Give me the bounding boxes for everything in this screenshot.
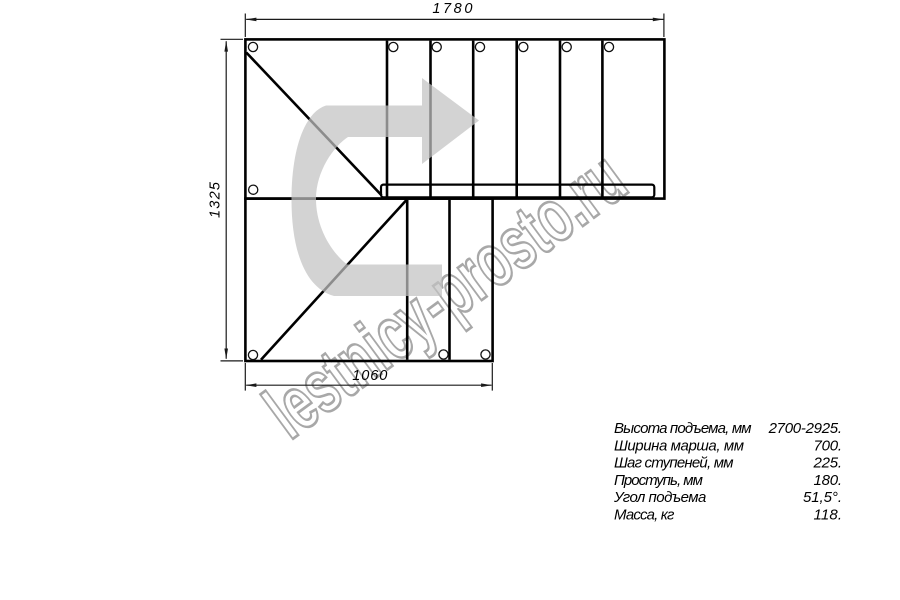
svg-text:225.: 225. — [813, 455, 843, 472]
svg-text:180.: 180. — [814, 472, 843, 489]
svg-text:Масса, кг: Масса, кг — [614, 507, 675, 524]
svg-text:118.: 118. — [814, 507, 843, 524]
svg-text:1060: 1060 — [352, 368, 387, 384]
svg-text:2700-2925.: 2700-2925. — [768, 420, 842, 437]
svg-text:Угол подъема: Угол подъема — [613, 489, 706, 506]
svg-text:Высота подъема, мм: Высота подъема, мм — [614, 420, 752, 437]
svg-text:1325: 1325 — [208, 181, 224, 218]
svg-text:Проступь, мм: Проступь, мм — [614, 472, 703, 489]
svg-text:700.: 700. — [814, 437, 843, 454]
svg-text:Ширина марша, мм: Ширина марша, мм — [614, 437, 744, 454]
svg-text:51,5°.: 51,5°. — [803, 489, 842, 506]
svg-text:Шаг ступеней, мм: Шаг ступеней, мм — [614, 455, 734, 472]
